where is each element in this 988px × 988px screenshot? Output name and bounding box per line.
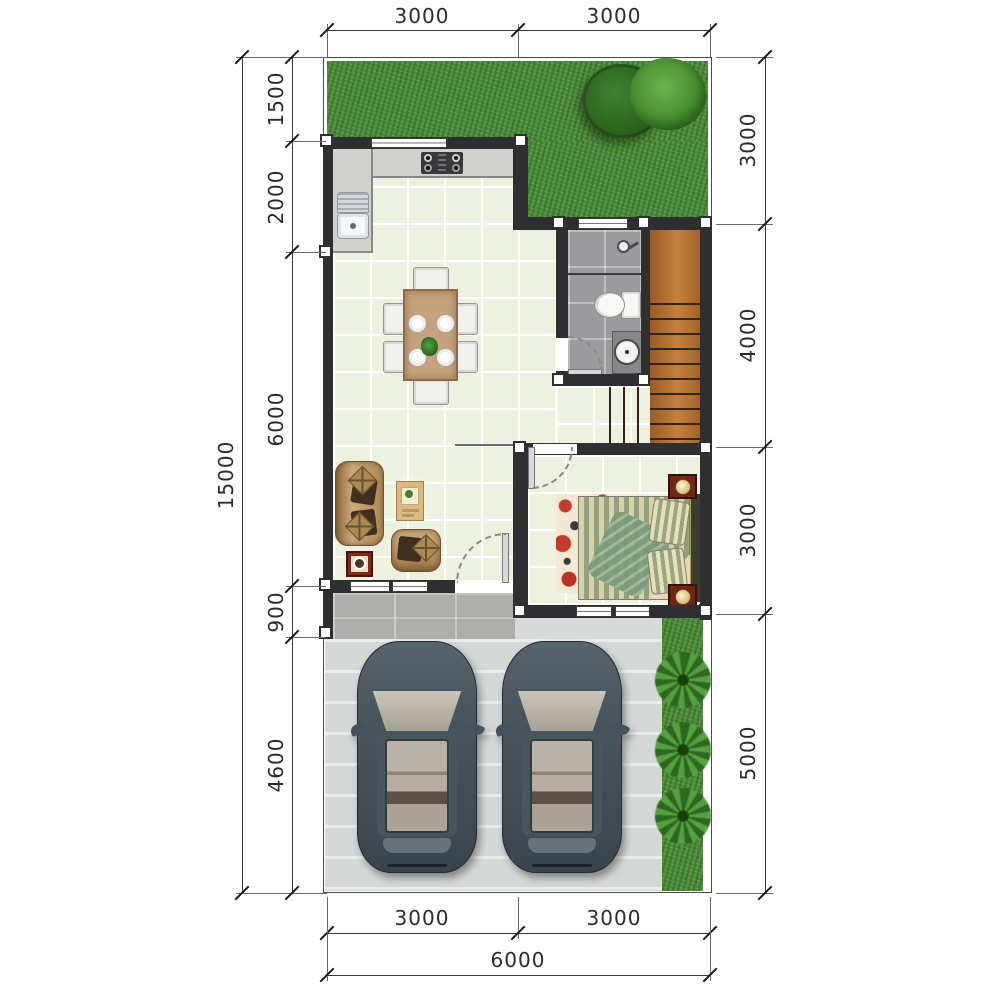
column-marker xyxy=(552,216,565,229)
car-rear-window xyxy=(528,838,596,853)
dim-line-right xyxy=(765,57,766,893)
shower-partition xyxy=(568,273,641,275)
kitchen-sink-drainer xyxy=(337,192,369,213)
staircase-main-run xyxy=(650,230,700,443)
column-marker xyxy=(637,216,650,229)
car-tail-line xyxy=(387,864,447,867)
dim-line-left-inner xyxy=(292,57,293,893)
extension-line xyxy=(236,893,327,894)
dim-label-left-5: 4600 xyxy=(264,710,288,820)
wall-bedroom-bottom xyxy=(513,605,712,618)
window-kitchen xyxy=(371,138,447,148)
car-rear-window xyxy=(383,838,451,853)
dim-label-left-2: 2000 xyxy=(264,142,288,252)
plate-4 xyxy=(436,348,455,367)
window-living-2 xyxy=(392,581,428,592)
dim-label-left-4: 900 xyxy=(264,557,288,667)
column-marker xyxy=(514,134,527,147)
floor-plan-canvas: 3000 3000 15000 1500 2000 6000 900 4600 … xyxy=(0,0,988,988)
beam-line-living-dining xyxy=(455,444,513,446)
nightstand-lamp-1 xyxy=(675,479,691,495)
wall-left xyxy=(323,137,333,639)
car-interior xyxy=(530,739,594,833)
dim-label-right-2: 4000 xyxy=(736,280,760,390)
sink-drain xyxy=(350,223,356,229)
wall-bath-stairs xyxy=(641,230,650,386)
dining-table xyxy=(403,289,458,381)
car-1 xyxy=(357,641,477,873)
extension-line xyxy=(710,897,711,981)
side-table xyxy=(346,551,373,577)
dim-label-bottom-total: 6000 xyxy=(470,948,566,972)
plate-2 xyxy=(436,314,455,333)
palm-plant-3 xyxy=(655,788,711,844)
dim-label-top-2: 3000 xyxy=(566,4,662,28)
extension-line xyxy=(327,897,328,981)
dim-label-bottom-2: 3000 xyxy=(566,906,662,930)
window-bathroom xyxy=(578,218,628,229)
palm-plant-1 xyxy=(655,652,711,708)
column-marker xyxy=(699,604,712,617)
garden-tree-2 xyxy=(630,58,706,130)
window-bedroom-1 xyxy=(576,606,612,617)
nightstand-lamp-2 xyxy=(675,589,691,605)
bed-pillow-1 xyxy=(648,498,691,547)
dim-label-bottom-1: 3000 xyxy=(374,906,470,930)
table-plant-icon xyxy=(421,337,438,356)
porch-floor xyxy=(333,593,515,639)
column-marker xyxy=(699,441,712,454)
dim-label-right-3: 3000 xyxy=(736,475,760,585)
basin-drain xyxy=(625,350,629,354)
column-marker xyxy=(319,578,332,591)
dim-label-left-outer: 15000 xyxy=(214,420,238,530)
car-tail-line xyxy=(532,864,592,867)
wall-right xyxy=(700,217,712,620)
wall-living-bedroom xyxy=(513,443,528,607)
toilet-bowl xyxy=(594,292,625,318)
column-marker xyxy=(513,441,526,454)
dim-line-left-outer xyxy=(242,57,243,893)
wall-bath-left-upper xyxy=(556,230,568,338)
dim-label-left-3: 6000 xyxy=(264,364,288,474)
column-marker xyxy=(552,373,565,386)
stair-treads xyxy=(650,290,700,443)
dim-label-left-1: 1500 xyxy=(264,44,288,154)
car-2 xyxy=(502,641,622,873)
bathroom-door-opening xyxy=(557,338,567,371)
dim-label-right-4: 5000 xyxy=(736,698,760,808)
front-garden-grass-right xyxy=(520,141,708,222)
stove-icon xyxy=(421,152,463,174)
dim-label-right-1: 3000 xyxy=(736,85,760,195)
coffee-table xyxy=(396,481,424,521)
palm-plant-2 xyxy=(655,722,711,778)
column-marker xyxy=(699,216,712,229)
car-interior xyxy=(385,739,449,833)
dining-chair-bottom xyxy=(413,379,449,405)
column-marker xyxy=(513,604,526,617)
column-marker xyxy=(637,373,650,386)
window-bedroom-2 xyxy=(615,606,650,617)
wall-bath-bottom xyxy=(556,374,650,386)
dim-label-top-1: 3000 xyxy=(374,4,470,28)
staircase-lower-run xyxy=(597,387,650,443)
window-living-1 xyxy=(350,581,390,592)
dim-line-bottom-outer xyxy=(327,975,710,976)
plate-1 xyxy=(408,314,427,333)
